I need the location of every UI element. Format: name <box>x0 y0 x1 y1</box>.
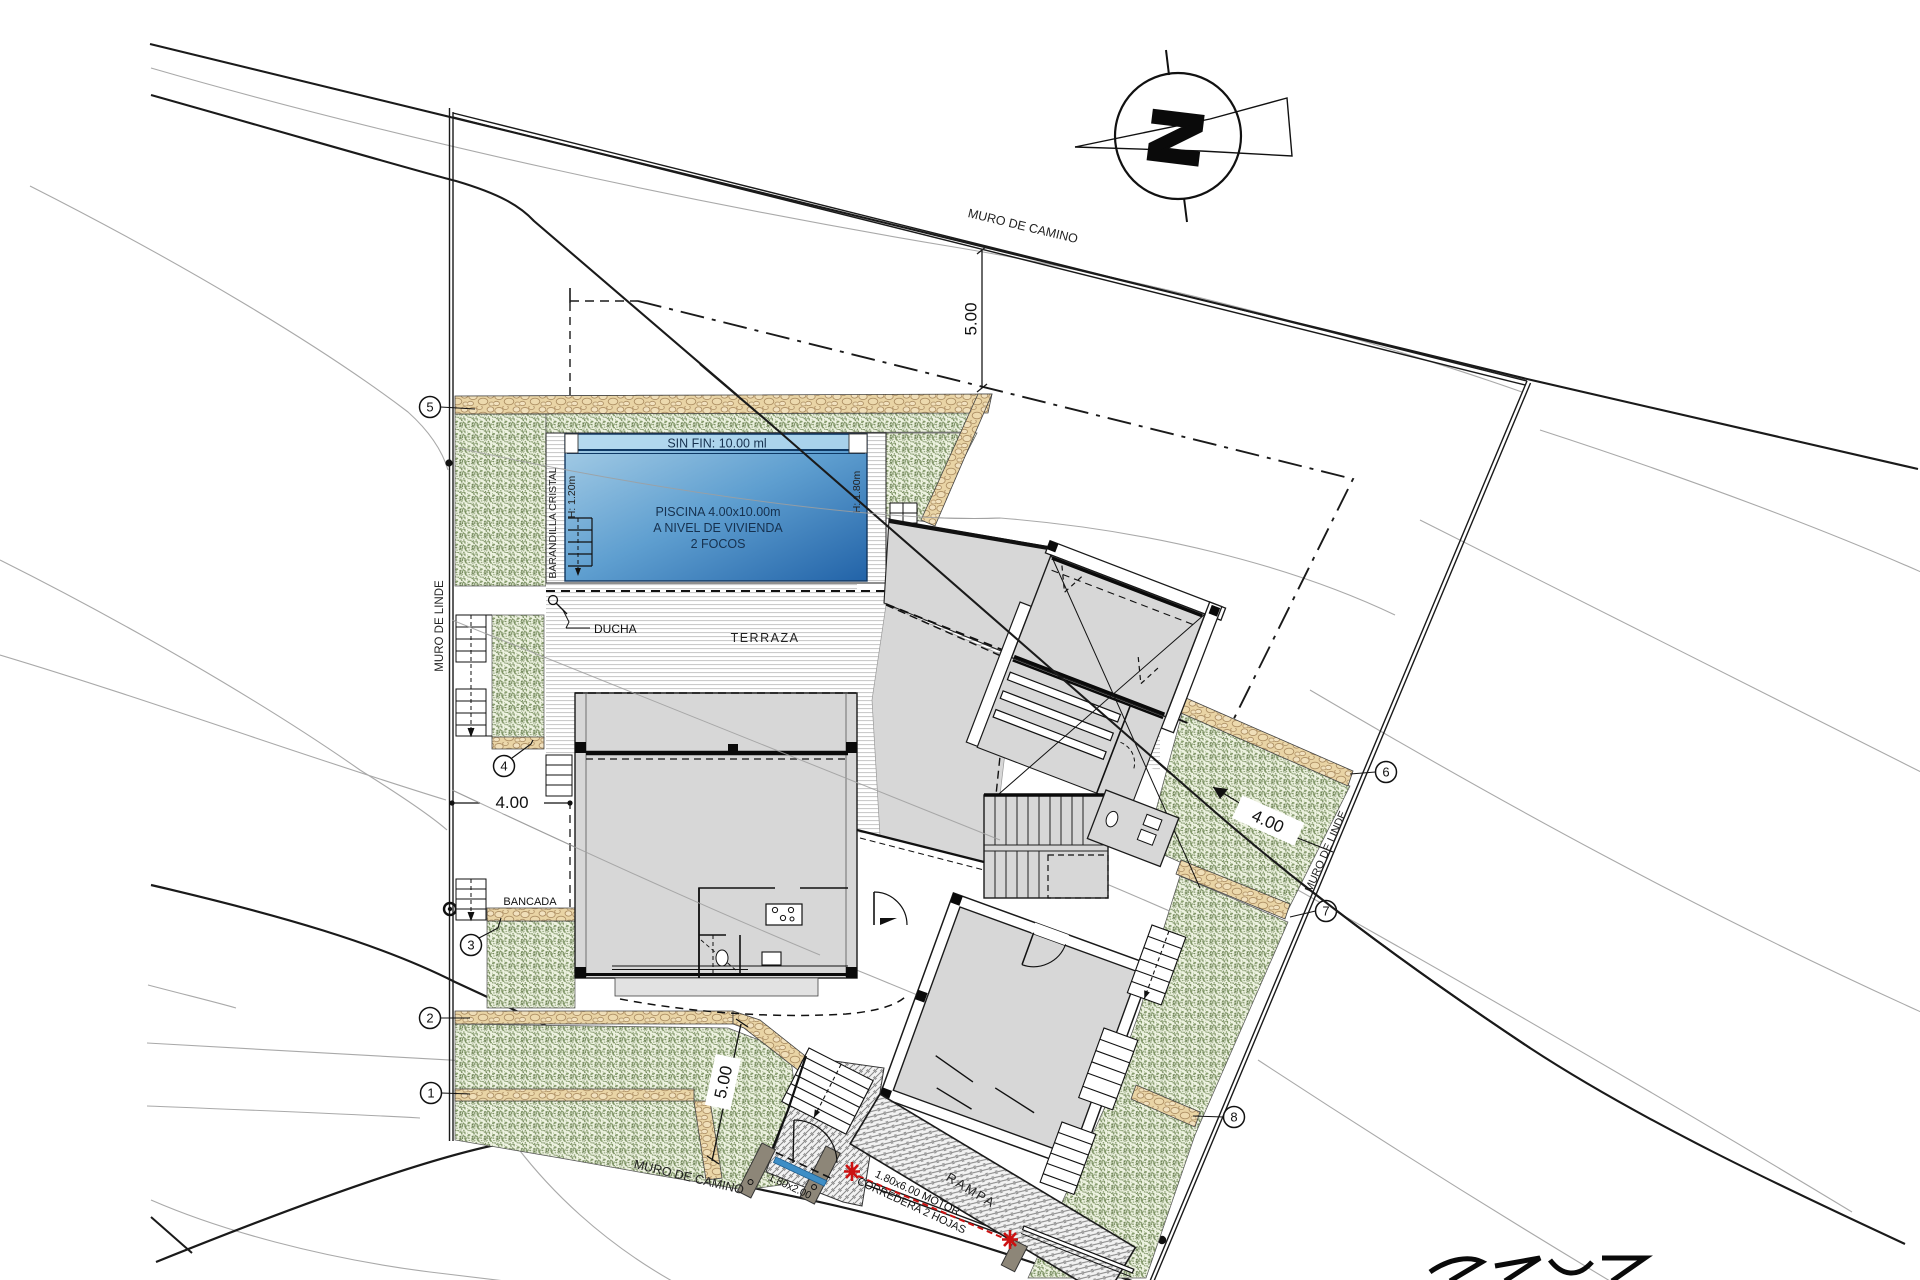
svg-text:DUCHA: DUCHA <box>594 622 637 636</box>
svg-text:A NIVEL DE VIVIENDA: A NIVEL DE VIVIENDA <box>653 521 783 535</box>
svg-text:BANCADA: BANCADA <box>503 896 557 908</box>
svg-text:8: 8 <box>1230 1110 1237 1125</box>
svg-text:PISCINA 4.00x10.00m: PISCINA 4.00x10.00m <box>655 505 780 519</box>
svg-text:4.00: 4.00 <box>495 793 528 812</box>
svg-text:1: 1 <box>427 1086 434 1101</box>
svg-text:2 FOCOS: 2 FOCOS <box>691 537 746 551</box>
svg-text:2: 2 <box>426 1011 433 1026</box>
svg-text:H: 1.20m: H: 1.20m <box>566 475 578 518</box>
svg-text:6: 6 <box>1382 765 1389 780</box>
svg-text:4: 4 <box>500 759 507 774</box>
svg-text:N: N <box>1133 104 1217 171</box>
svg-text:H: 1.80m: H: 1.80m <box>851 470 863 513</box>
svg-text:5: 5 <box>426 400 433 415</box>
svg-text:MURO DE LINDE: MURO DE LINDE <box>434 580 446 672</box>
svg-text:SIN FIN: 10.00 ml: SIN FIN: 10.00 ml <box>667 437 766 451</box>
svg-text:BARANDILLA CRISTAL: BARANDILLA CRISTAL <box>547 467 559 578</box>
svg-text:3: 3 <box>467 938 474 953</box>
svg-text:TERRAZA: TERRAZA <box>731 631 800 645</box>
svg-text:5.00: 5.00 <box>961 302 980 335</box>
